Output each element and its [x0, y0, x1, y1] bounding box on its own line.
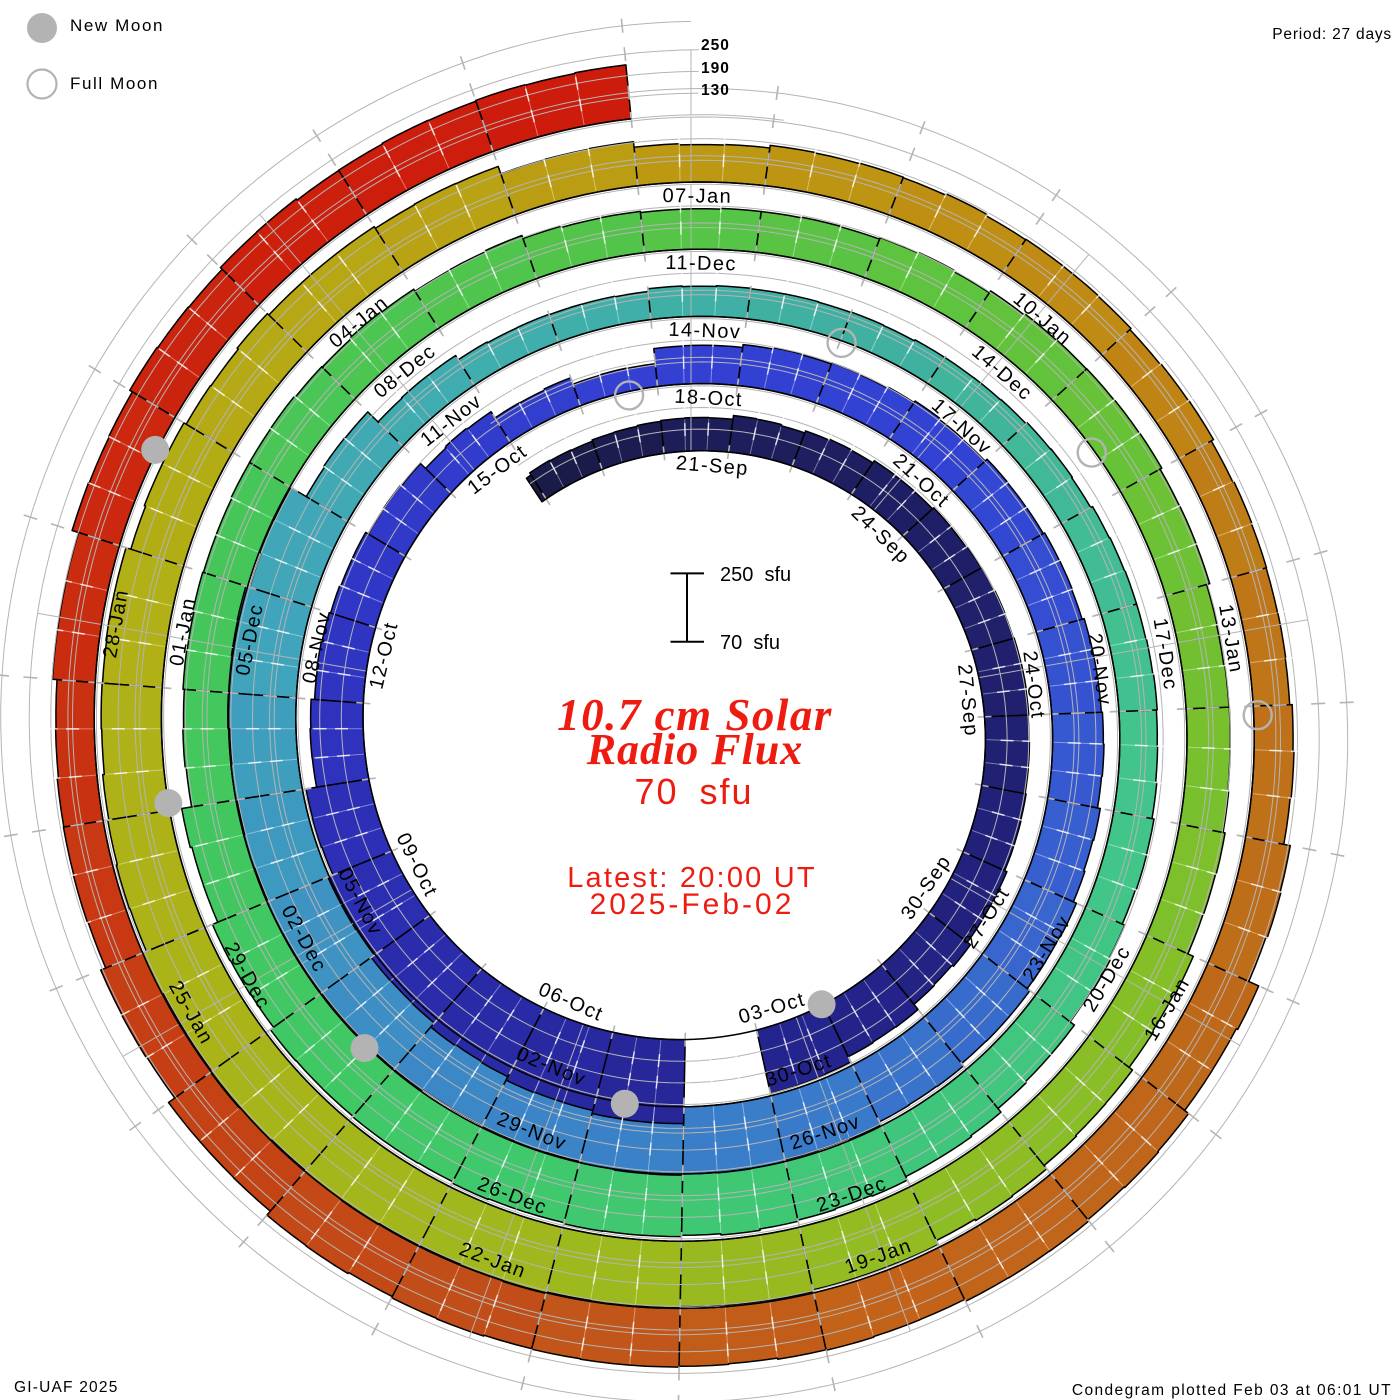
- svg-text:250: 250: [701, 37, 730, 54]
- svg-text:New Moon: New Moon: [70, 16, 164, 35]
- svg-text:130: 130: [701, 82, 730, 99]
- svg-text:18-Oct: 18-Oct: [674, 386, 744, 412]
- svg-text:250 sfu: 250 sfu: [720, 564, 791, 586]
- svg-text:2025-Feb-02: 2025-Feb-02: [590, 888, 795, 921]
- svg-text:Radio Flux: Radio Flux: [586, 725, 804, 774]
- svg-text:Full Moon: Full Moon: [70, 74, 159, 93]
- svg-text:Period: 27 days: Period: 27 days: [1272, 26, 1392, 43]
- svg-text:70 sfu: 70 sfu: [720, 632, 780, 654]
- svg-text:190: 190: [701, 60, 730, 77]
- svg-text:07-Jan: 07-Jan: [662, 185, 732, 208]
- svg-text:11-Dec: 11-Dec: [665, 252, 737, 275]
- svg-text:Condegram plotted Feb 03 at 06: Condegram plotted Feb 03 at 06:01 UT: [1072, 1382, 1392, 1399]
- svg-text:14-Nov: 14-Nov: [668, 319, 742, 344]
- svg-text:GI-UAF 2025: GI-UAF 2025: [14, 1379, 119, 1396]
- svg-text:70 sfu: 70 sfu: [634, 771, 753, 812]
